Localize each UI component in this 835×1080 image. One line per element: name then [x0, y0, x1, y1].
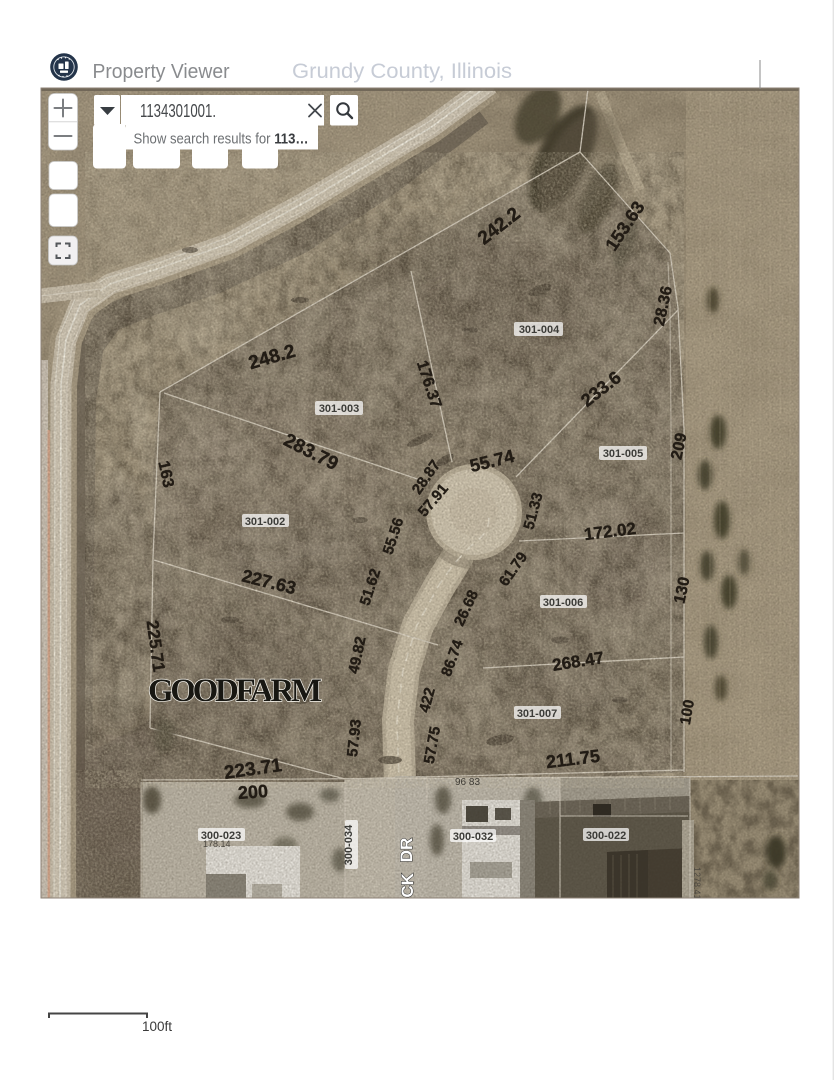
svg-text:ECK: ECK [398, 872, 417, 909]
svg-text:301-005: 301-005 [603, 448, 643, 460]
svg-text:DR: DR [397, 838, 416, 863]
svg-text:200: 200 [237, 781, 268, 803]
svg-text:301-006: 301-006 [543, 597, 583, 609]
svg-text:96 83: 96 83 [455, 777, 480, 788]
svg-text:301-007: 301-007 [517, 708, 557, 720]
svg-text:178.14: 178.14 [203, 839, 231, 849]
svg-text:300-032: 300-032 [453, 831, 493, 843]
svg-text:GOODFARM: GOODFARM [148, 673, 322, 709]
svg-text:1134301001.: 1134301001. [140, 101, 216, 121]
svg-text:Property Viewer: Property Viewer [93, 60, 230, 83]
svg-text:Grundy County, Illinois: Grundy County, Illinois [292, 60, 512, 83]
svg-text:301-003: 301-003 [319, 403, 359, 415]
svg-text:301-002: 301-002 [245, 516, 285, 528]
svg-text:100ft: 100ft [142, 1019, 172, 1034]
svg-text:Show search results for 113…: Show search results for 113… [134, 132, 309, 148]
svg-text:300-034: 300-034 [343, 824, 355, 865]
svg-text:300-022: 300-022 [586, 830, 626, 842]
svg-text:301-004: 301-004 [519, 324, 560, 336]
svg-text:1278.41: 1278.41 [692, 867, 702, 900]
